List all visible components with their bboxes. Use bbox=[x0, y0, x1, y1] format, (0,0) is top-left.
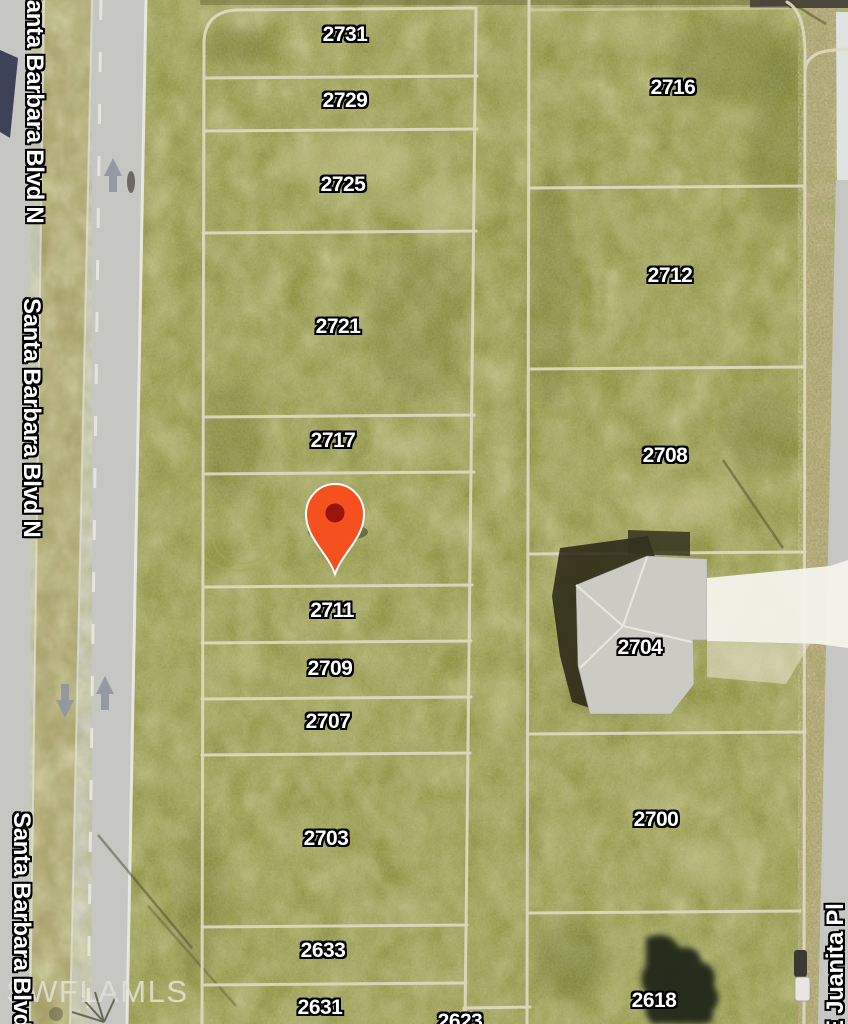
lot-label-2721: 2721 bbox=[316, 315, 361, 339]
lot-label-2709: 2709 bbox=[308, 657, 353, 681]
street-label-santa-barbara-3: Santa Barbara Blvd N bbox=[5, 812, 37, 1024]
house-roof bbox=[576, 556, 707, 714]
lot-label-2729: 2729 bbox=[323, 89, 368, 113]
street-label-santa-barbara-2: Santa Barbara Blvd N bbox=[15, 298, 47, 537]
lot-label-2717: 2717 bbox=[311, 429, 356, 453]
lot-label-2623: 2623 bbox=[438, 1010, 483, 1024]
lot-label-2631: 2631 bbox=[298, 996, 343, 1020]
lot-label-2711: 2711 bbox=[310, 599, 354, 623]
lot-label-2704: 2704 bbox=[618, 636, 663, 660]
lot-label-2716: 2716 bbox=[651, 76, 696, 100]
lot-label-2725: 2725 bbox=[321, 173, 366, 197]
lot-label-2708: 2708 bbox=[643, 444, 688, 468]
lot-label-2707: 2707 bbox=[306, 710, 351, 734]
lot-label-2633: 2633 bbox=[301, 939, 346, 963]
lot-label-2712: 2712 bbox=[648, 264, 693, 288]
lot-label-2703: 2703 bbox=[304, 827, 349, 851]
street-label-e-juanita-pl: E Juanita Pl bbox=[820, 904, 848, 1024]
lot-label-2618: 2618 bbox=[632, 989, 677, 1013]
street-label-santa-barbara-1: Santa Barbara Blvd N bbox=[18, 0, 50, 223]
listing-map[interactable]: Santa Barbara Blvd N Santa Barbara Blvd … bbox=[0, 0, 848, 1024]
lot-label-2700: 2700 bbox=[634, 808, 679, 832]
aerial-map-graphic bbox=[0, 0, 848, 1024]
lot-label-2731: 2731 bbox=[323, 23, 368, 47]
